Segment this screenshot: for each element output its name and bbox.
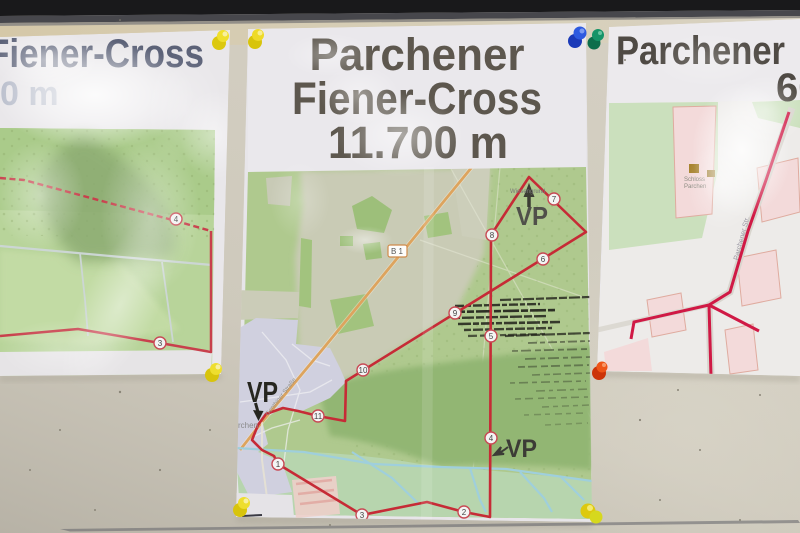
- svg-text:6: 6: [541, 255, 546, 264]
- svg-text:2: 2: [462, 508, 467, 517]
- svg-text:VP: VP: [506, 435, 537, 463]
- svg-text:8: 8: [490, 231, 495, 240]
- svg-text:9: 9: [453, 309, 458, 318]
- svg-text:Wiesengrund: Wiesengrund: [510, 189, 545, 195]
- svg-text:5: 5: [489, 332, 494, 341]
- svg-text:B 1: B 1: [391, 247, 404, 256]
- svg-text:3: 3: [360, 511, 365, 520]
- svg-text:VP: VP: [516, 201, 548, 231]
- svg-text:11: 11: [314, 412, 323, 421]
- svg-text:10: 10: [359, 366, 368, 375]
- svg-text:1: 1: [276, 460, 281, 469]
- svg-text:4: 4: [489, 434, 494, 443]
- svg-text:rchen: rchen: [238, 421, 258, 430]
- svg-text:3: 3: [158, 339, 163, 348]
- svg-text:7: 7: [552, 195, 557, 204]
